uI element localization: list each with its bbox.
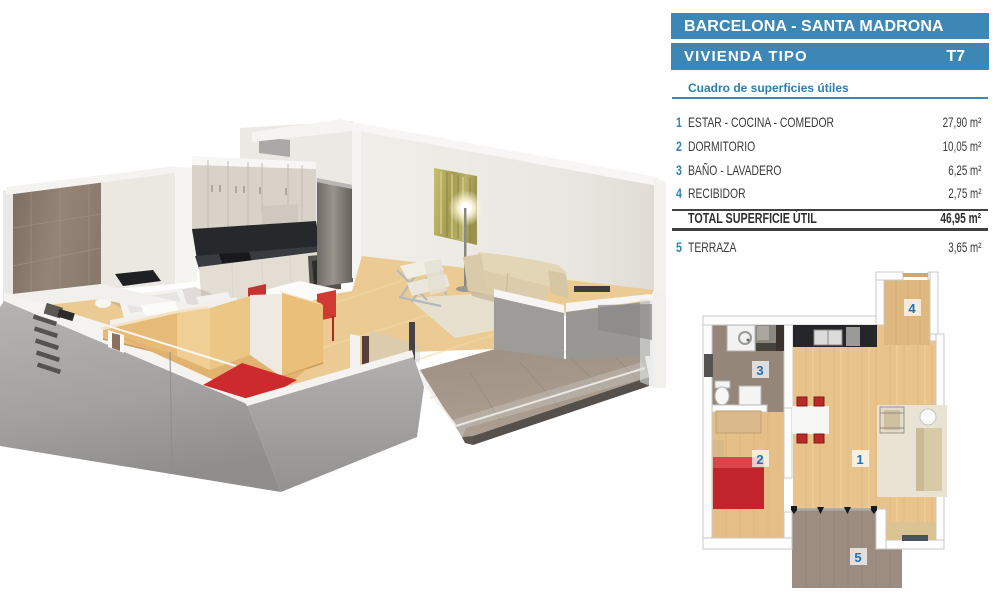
svg-text:5: 5: [854, 550, 861, 565]
svg-text:3: 3: [756, 363, 763, 378]
svg-text:4: 4: [908, 301, 916, 316]
svg-text:2: 2: [756, 452, 763, 467]
svg-text:1: 1: [856, 452, 863, 467]
